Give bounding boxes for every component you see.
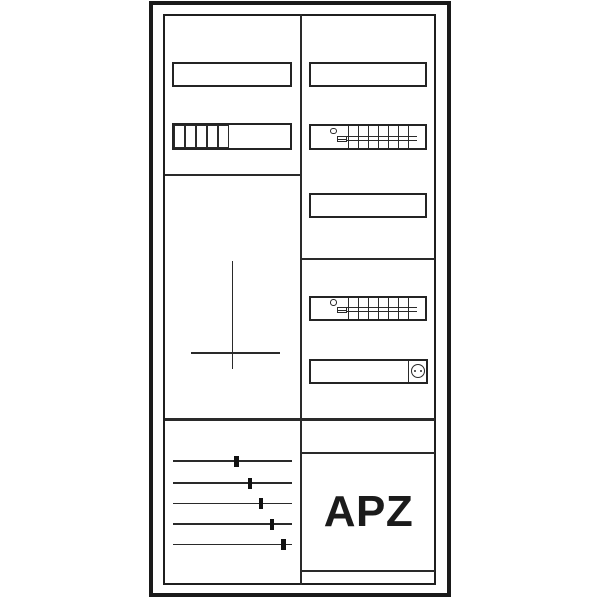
meter-cabinet-diagram: APZ — [0, 0, 600, 600]
right-cover-plate-top — [309, 62, 427, 88]
busbar-line-upper — [347, 136, 417, 137]
busbar-line-lower — [347, 311, 417, 312]
meter-cross-horizontal — [191, 352, 280, 354]
module-cell — [185, 125, 196, 148]
busbar-line-lower — [347, 140, 417, 141]
apz-bottom-divider — [302, 570, 435, 572]
socket-strip — [309, 359, 428, 385]
module-strip-cells — [174, 125, 290, 148]
right-top-section-divider — [302, 258, 435, 260]
apz-field: APZ — [302, 454, 435, 570]
terminal-block-1 — [309, 124, 427, 150]
module-cell — [174, 125, 185, 148]
left-top-section-divider — [165, 174, 300, 176]
mid-section-divider — [165, 418, 435, 421]
busbar-line-upper — [347, 307, 417, 308]
right-cover-plate-mid — [309, 193, 427, 218]
terminal-block-2 — [309, 296, 427, 321]
left-module-strip — [172, 123, 292, 150]
module-cell — [207, 125, 218, 148]
socket-outlet-icon — [411, 364, 425, 378]
module-cell — [218, 125, 229, 148]
left-cover-plate — [172, 62, 292, 88]
apz-label: APZ — [324, 490, 414, 534]
socket-pin-right — [420, 370, 422, 372]
module-cell — [196, 125, 207, 148]
socket-partition — [408, 361, 410, 383]
